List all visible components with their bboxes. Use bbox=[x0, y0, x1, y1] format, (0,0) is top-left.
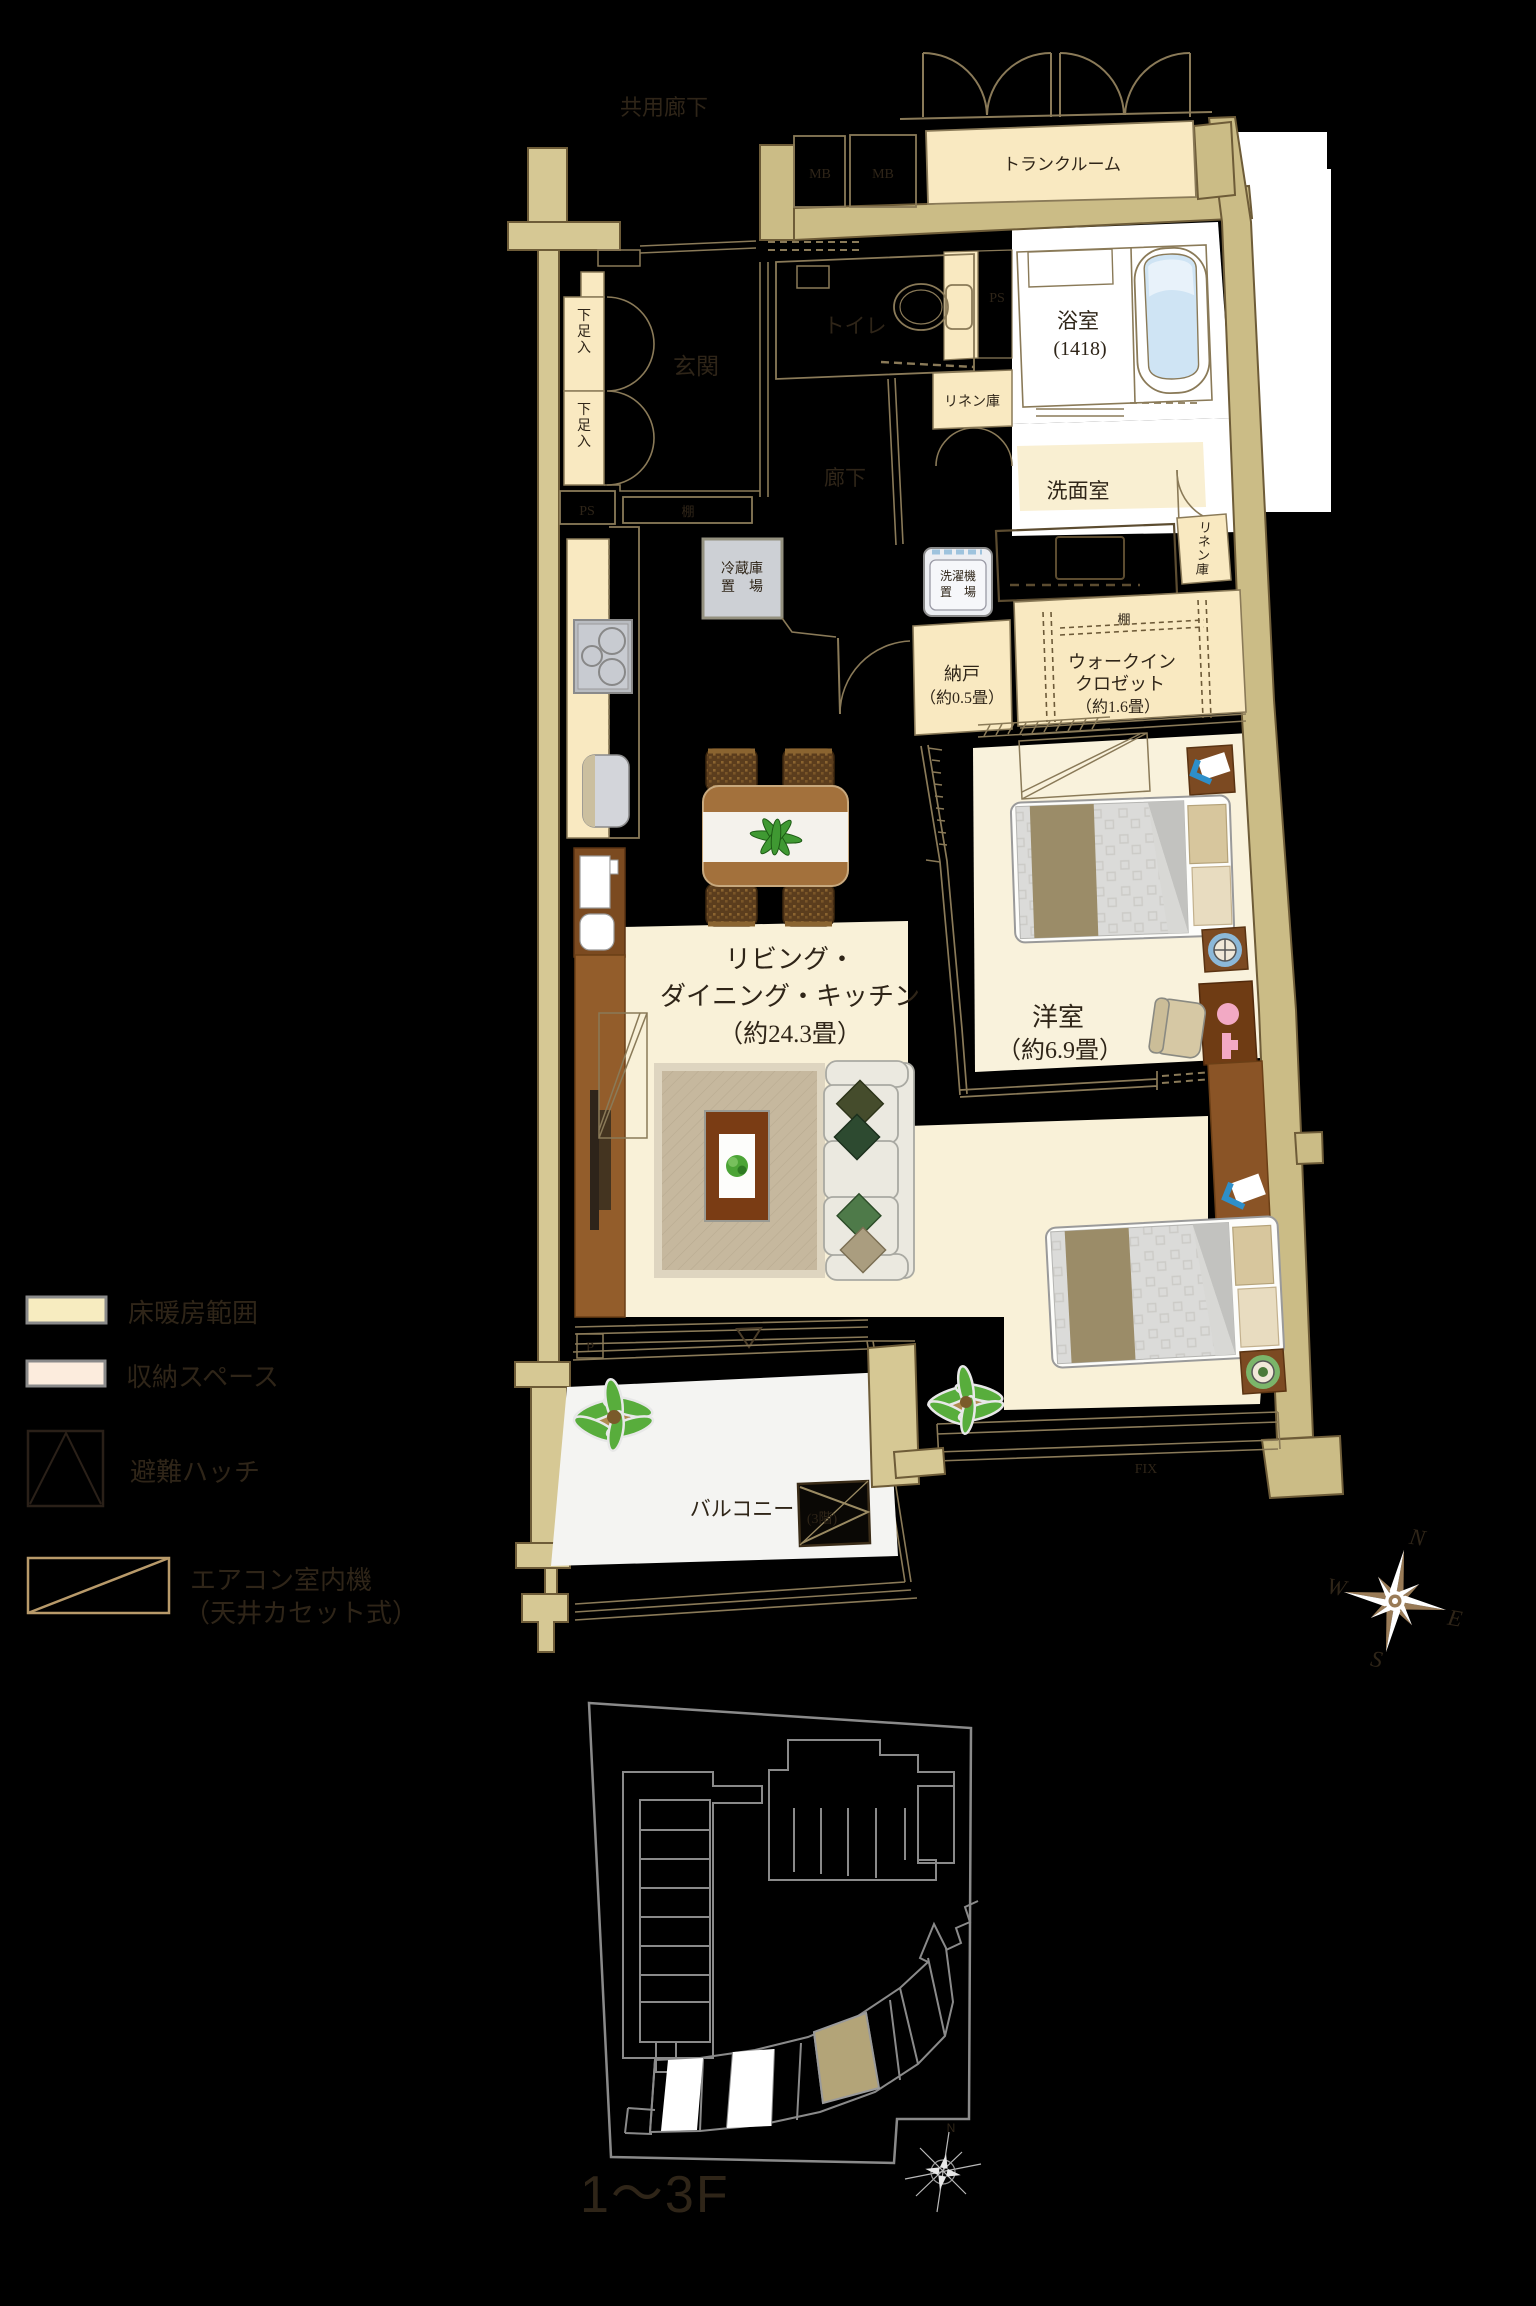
svg-text:浴室: 浴室 bbox=[1057, 309, 1099, 333]
svg-text:洗濯機: 洗濯機 bbox=[940, 568, 976, 583]
svg-text:(1418): (1418) bbox=[1053, 338, 1106, 360]
svg-text:1～3F: 1～3F bbox=[580, 2166, 730, 2224]
svg-text:置 場: 置 場 bbox=[940, 585, 976, 599]
svg-text:入: 入 bbox=[577, 341, 591, 356]
svg-text:MB: MB bbox=[872, 167, 894, 182]
svg-text:N: N bbox=[947, 2121, 956, 2135]
svg-text:避難ハッチ: 避難ハッチ bbox=[130, 1457, 260, 1487]
svg-text:(3階): (3階) bbox=[807, 1511, 838, 1527]
svg-text:足: 足 bbox=[577, 419, 591, 434]
svg-text:ダイニング・キッチン: ダイニング・キッチン bbox=[660, 982, 920, 1011]
svg-text:バルコニー: バルコニー bbox=[690, 1497, 795, 1521]
svg-text:（天井カセット式）: （天井カセット式） bbox=[184, 1598, 418, 1628]
svg-text:トランクルーム: トランクルーム bbox=[1003, 155, 1121, 174]
svg-text:収納スペース: 収納スペース bbox=[126, 1362, 279, 1392]
svg-text:PS: PS bbox=[579, 504, 595, 519]
svg-text:P: P bbox=[586, 1340, 594, 1356]
svg-text:納戸: 納戸 bbox=[944, 664, 980, 684]
svg-text:（約1.6畳）: （約1.6畳） bbox=[1076, 698, 1160, 716]
svg-text:洋室: 洋室 bbox=[1032, 1003, 1084, 1032]
svg-text:足: 足 bbox=[577, 325, 591, 340]
svg-text:廊下: 廊下 bbox=[824, 466, 866, 490]
svg-text:エアコン室内機: エアコン室内機 bbox=[190, 1565, 372, 1595]
svg-text:クロゼット: クロゼット bbox=[1075, 674, 1165, 694]
svg-text:棚: 棚 bbox=[681, 504, 694, 519]
svg-text:ウォークイン: ウォークイン bbox=[1068, 652, 1176, 672]
svg-text:MB: MB bbox=[809, 167, 831, 182]
svg-text:FIX: FIX bbox=[1135, 1462, 1158, 1477]
svg-text:（約0.5畳）: （約0.5畳） bbox=[920, 689, 1004, 707]
svg-text:トイレ: トイレ bbox=[824, 314, 887, 338]
svg-text:入: 入 bbox=[577, 435, 591, 450]
svg-text:（約6.9畳）: （約6.9畳） bbox=[997, 1037, 1123, 1064]
svg-text:（約24.3畳）: （約24.3畳） bbox=[718, 1020, 862, 1048]
svg-text:共用廊下: 共用廊下 bbox=[620, 95, 708, 120]
svg-text:床暖房範囲: 床暖房範囲 bbox=[128, 1298, 258, 1328]
svg-text:PS: PS bbox=[989, 291, 1005, 306]
svg-text:下: 下 bbox=[577, 403, 591, 418]
svg-text:洗面室: 洗面室 bbox=[1047, 479, 1110, 503]
svg-text:冷蔵庫: 冷蔵庫 bbox=[721, 560, 763, 577]
svg-text:玄関: 玄関 bbox=[673, 354, 719, 379]
svg-text:下: 下 bbox=[577, 309, 591, 324]
svg-text:リビング・: リビング・ bbox=[725, 945, 855, 974]
svg-text:庫: 庫 bbox=[1195, 562, 1209, 578]
svg-text:リネン庫: リネン庫 bbox=[944, 393, 1000, 410]
svg-text:置 場: 置 場 bbox=[721, 579, 763, 595]
